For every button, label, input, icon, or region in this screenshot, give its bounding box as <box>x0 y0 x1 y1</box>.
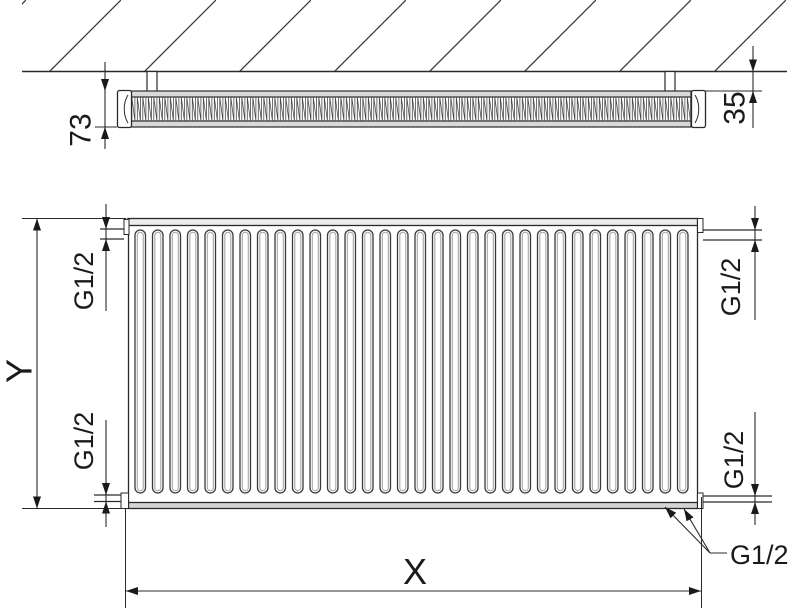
dimension-connection-bottom-left: G1/2 <box>69 412 106 527</box>
bottom-edge-band <box>128 503 698 509</box>
radiator-front-view <box>94 219 772 509</box>
wall-clearance-value: 35 <box>719 91 752 124</box>
wall-hatching <box>22 0 787 71</box>
front-panel-edge <box>131 121 691 127</box>
dimension-height-y: Y <box>0 219 126 509</box>
panel-channels <box>134 229 694 494</box>
mounting-bracket-right <box>665 72 675 93</box>
connection-pipe-top-right <box>703 230 762 240</box>
thread-size-label: G1/2 <box>719 431 749 490</box>
top-edge-band <box>128 219 698 226</box>
dimension-connection-bottom-right: G1/2 <box>719 412 755 525</box>
corner-plug-bottom-right <box>698 493 704 509</box>
thread-size-label: G1/2 <box>730 540 789 570</box>
dimension-connection-top-left: G1/2 <box>69 204 106 311</box>
corner-plug-top-left <box>124 220 129 235</box>
thread-size-label: G1/2 <box>69 412 99 471</box>
thread-size-label: G1/2 <box>716 258 746 317</box>
corner-plug-top-right <box>698 219 704 233</box>
connection-leader-bottom-outlets: G1/2 <box>665 507 789 570</box>
radiator-top-view <box>118 72 706 128</box>
dimension-width-x: X <box>126 497 702 608</box>
connection-pipe-bottom-right <box>703 496 772 502</box>
dimension-depth-73: 73 <box>65 62 118 149</box>
mounting-bracket-left <box>147 72 157 93</box>
depth-value: 73 <box>65 113 98 146</box>
corner-plug-bottom-left <box>121 493 129 509</box>
height-value: Y <box>0 359 40 383</box>
thread-size-label: G1/2 <box>69 252 99 311</box>
dimension-connection-top-right: G1/2 <box>716 206 755 320</box>
radiator-technical-drawing: 73 35 Y X <box>0 0 800 611</box>
wall-section <box>22 0 787 72</box>
width-value: X <box>403 551 427 592</box>
end-cap-left <box>118 91 132 128</box>
convector-fins <box>131 97 691 121</box>
end-cap-right <box>692 91 706 128</box>
back-panel-edge <box>131 91 691 97</box>
connection-pipe-top-left <box>100 229 124 239</box>
drawing-svg: 73 35 Y X <box>0 0 800 611</box>
connection-pipe-bottom-left <box>94 495 121 502</box>
